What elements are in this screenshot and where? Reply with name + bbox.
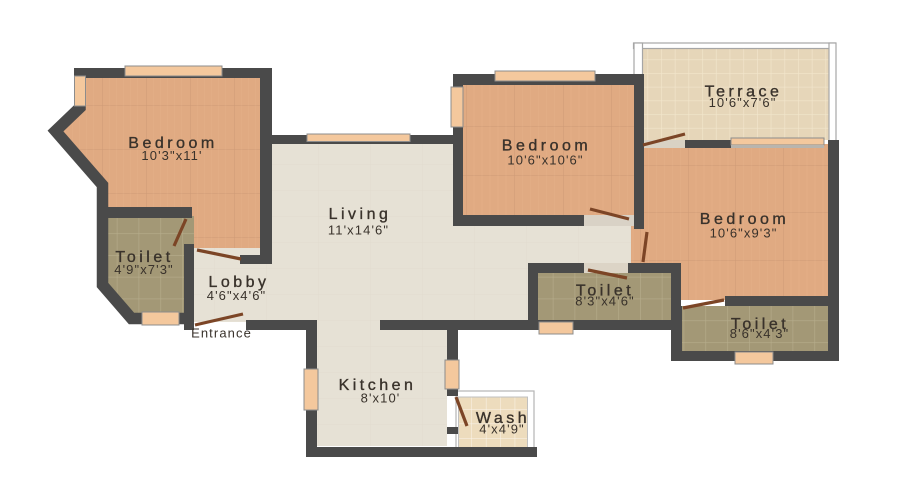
svg-text:10'3"x11': 10'3"x11' [141, 148, 202, 163]
svg-text:4'9"x7'3": 4'9"x7'3" [114, 262, 174, 277]
svg-text:8'x10': 8'x10' [361, 391, 401, 406]
svg-text:8'6"x4'3": 8'6"x4'3" [730, 326, 790, 341]
svg-text:10'6"x9'3": 10'6"x9'3" [710, 226, 778, 241]
svg-text:10'6"x10'6": 10'6"x10'6" [507, 153, 583, 168]
svg-text:4'6"x4'6": 4'6"x4'6" [207, 288, 267, 303]
svg-text:Living: Living [329, 206, 392, 223]
svg-text:Entrance: Entrance [191, 325, 252, 340]
svg-text:10'6"x7'6": 10'6"x7'6" [709, 95, 777, 110]
svg-text:4'x4'9": 4'x4'9" [479, 422, 524, 437]
svg-text:8'3"x4'6": 8'3"x4'6" [575, 294, 635, 309]
svg-text:11'x14'6": 11'x14'6" [328, 223, 389, 238]
